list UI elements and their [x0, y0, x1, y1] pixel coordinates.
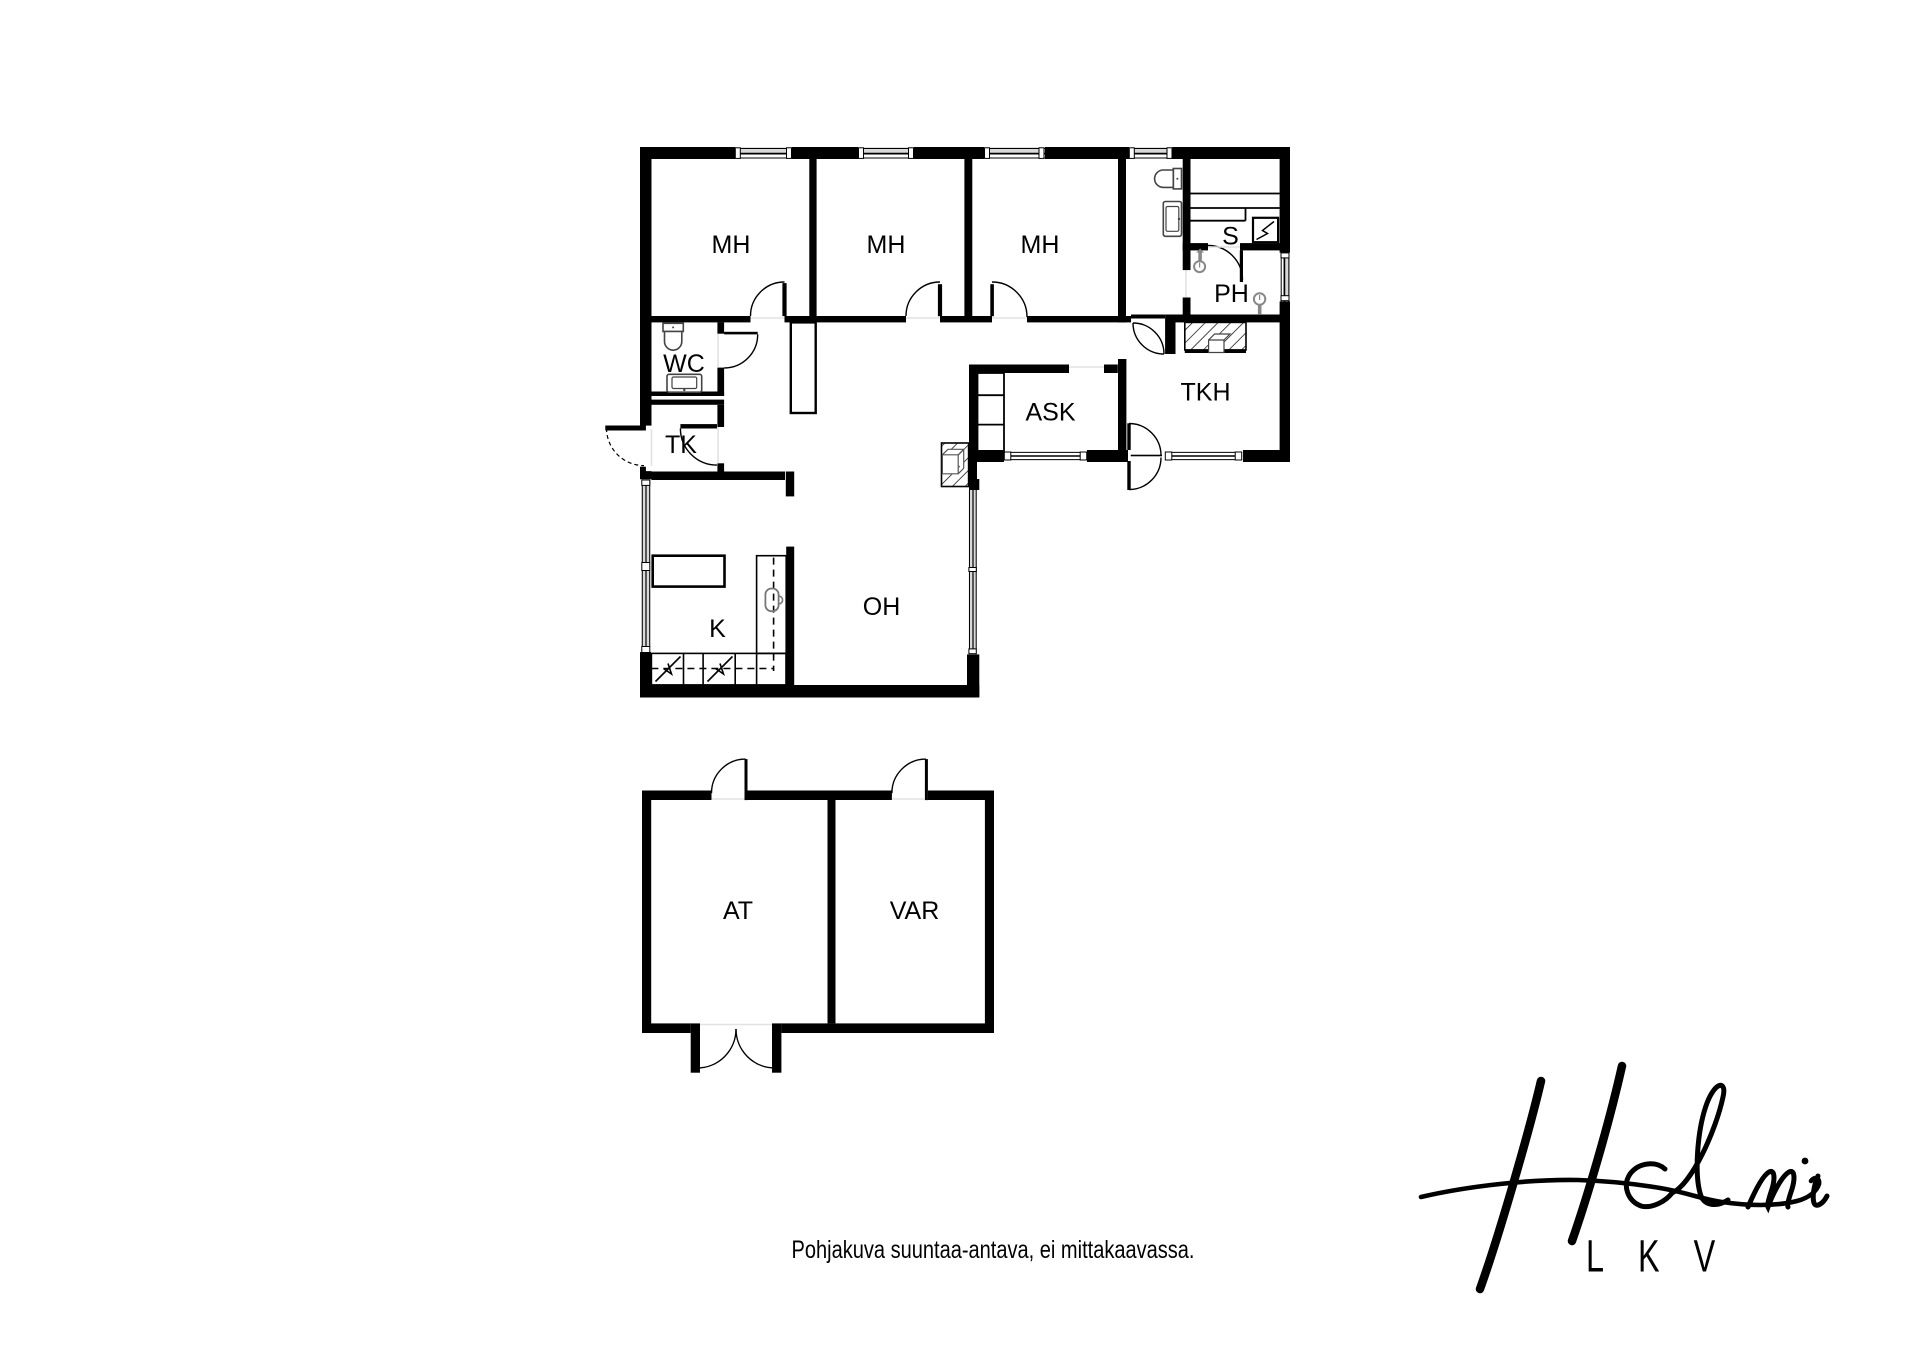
svg-text:S: S — [1222, 223, 1239, 251]
svg-text:K: K — [709, 615, 726, 643]
svg-text:ASK: ASK — [1025, 399, 1075, 427]
svg-text:OH: OH — [863, 593, 901, 621]
svg-text:WC: WC — [663, 350, 705, 378]
svg-text:MH: MH — [712, 231, 751, 259]
svg-text:TK: TK — [665, 431, 697, 459]
svg-text:MH: MH — [1021, 231, 1060, 259]
svg-text:Pohjakuva suuntaa-antava, ei m: Pohjakuva suuntaa-antava, ei mittakaavas… — [792, 1236, 1195, 1264]
svg-text:LKV: LKV — [1586, 1232, 1749, 1281]
svg-text:AT: AT — [723, 897, 753, 925]
svg-text:TKH: TKH — [1181, 379, 1231, 407]
svg-text:MH: MH — [867, 231, 906, 259]
svg-text:PH: PH — [1214, 280, 1249, 308]
svg-text:VAR: VAR — [890, 897, 940, 925]
